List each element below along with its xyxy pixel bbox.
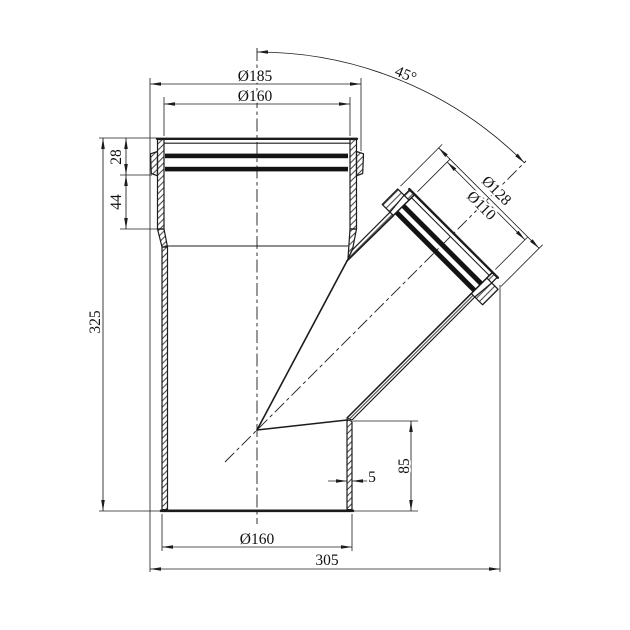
branch-inner-upper-wall xyxy=(347,195,415,262)
label-outlet-height: 85 xyxy=(396,458,413,474)
ext-d128-upper xyxy=(401,144,443,186)
label-socket-collar: 28 xyxy=(108,149,125,165)
centerlines xyxy=(225,48,526,524)
branch-inner-lower-wall xyxy=(347,272,493,418)
crotch-line-lower xyxy=(257,420,347,430)
right-socket-wall xyxy=(350,140,357,230)
label-branch-angle: 45° xyxy=(392,63,418,87)
hatched-wall-sections xyxy=(151,140,499,510)
top-seal-ring-upper xyxy=(165,154,348,159)
left-body-wall xyxy=(162,247,168,510)
label-overall-height: 325 xyxy=(87,310,104,334)
label-overall-width: 305 xyxy=(315,552,339,569)
label-bottom-pipe-outer: Ø160 xyxy=(240,531,275,548)
label-socket-depth: 44 xyxy=(108,194,125,210)
dimline-angle-arc xyxy=(257,52,524,163)
ext-d128-lower xyxy=(501,245,543,287)
left-socket-wall xyxy=(158,140,165,230)
label-top-socket-outer: Ø185 xyxy=(238,68,273,85)
top-seal-ring-lower xyxy=(165,167,348,172)
drawing-canvas: Ø185 Ø160 45° Ø128 Ø110 325 28 44 85 5 Ø… xyxy=(0,0,630,630)
right-gasket-bead xyxy=(357,152,364,176)
crotch-line-upper xyxy=(257,261,347,430)
pipe-fitting-technical-drawing: Ø185 Ø160 45° Ø128 Ø110 325 28 44 85 5 Ø… xyxy=(0,0,630,630)
left-taper-wall xyxy=(158,229,168,247)
label-top-socket-inner: Ø160 xyxy=(238,88,273,105)
label-wall-thickness: 5 xyxy=(368,469,376,486)
right-body-wall xyxy=(347,420,352,510)
left-gasket-bead xyxy=(151,152,158,176)
branch-lower-wall xyxy=(347,294,475,420)
